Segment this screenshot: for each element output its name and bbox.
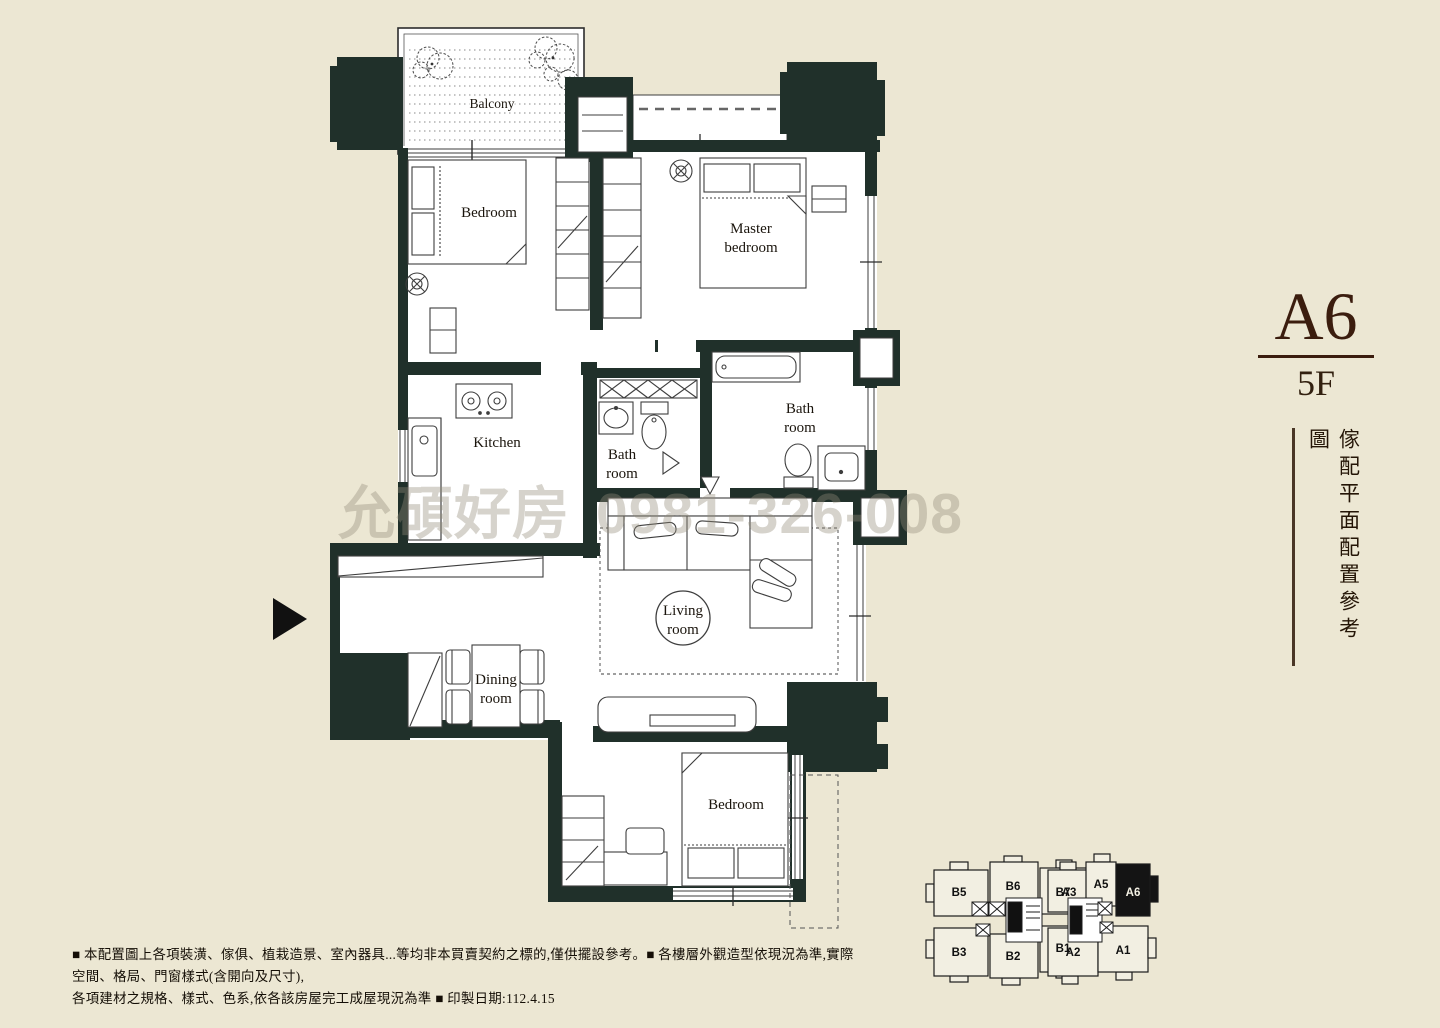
bath-main-label-1: Bath [786,401,815,417]
caption-text: 傢配平面配置參考圖 [1304,428,1364,668]
disclaimer: ■ 本配置圖上各項裝潢、傢俱、植栽造景、室內器具...等均非本買賣契約之標的,僅… [72,944,862,1010]
keyplan-unit-b5: B5 [952,887,967,899]
keyplan-unit-a5: A5 [1094,879,1109,891]
keyplan-unit-a1: A1 [1116,945,1131,957]
master-bedroom-label-1: Master [730,221,772,237]
entry-arrow-icon [273,598,307,640]
keyplan-core-left [972,898,1042,942]
watermark-phone: 0981-326-008 [596,482,963,546]
disclaimer-line-2: 各項建材之規格、樣式、色系,依各該房屋完工成屋現況為準 ■ 印製日期:112.4… [72,988,862,1010]
living-room-label-2: room [667,622,699,638]
kitchen-label: Kitchen [473,435,521,451]
bath-small-label-1: Bath [608,447,637,463]
keyplan-unit-b2: B2 [1006,951,1021,963]
plant-dot [431,63,434,66]
living-room-label-1: Living [663,603,703,619]
watermark-name: 允碩好房 [338,482,570,546]
balcony-label: Balcony [470,96,515,111]
plant-dot [552,57,555,60]
bedroom-top-label: Bedroom [461,205,517,221]
wardrobe [603,158,641,318]
caption: 傢配平面配置參考圖 [1292,428,1364,668]
keyplan-unit-a3: A3 [1062,887,1077,899]
keyplan-unit-a2: A2 [1066,947,1081,959]
keyplan-unit-a6: A6 [1126,887,1141,899]
title-block: A6 5F [1258,282,1374,404]
dining-room-label-2: room [480,691,512,707]
floor-plan-page: Balcony Bedroom Master bedroom Kitchen B… [0,0,1440,1028]
keyplan-unit-b6: B6 [1006,881,1021,893]
floor-title: 5F [1258,362,1374,404]
keyplan-unit-b3: B3 [952,947,967,959]
wardrobe [562,796,604,886]
bath-main-label-2: room [784,420,816,436]
watermark: 允碩好房0981-326-008 [338,468,963,550]
dining-room-label-1: Dining [475,672,517,688]
wardrobe [556,158,589,310]
key-plan: B5 B6 B7 B3 B2 B1 A3 A5 A6 A2 A1 [926,854,1158,985]
disclaimer-line-1: ■ 本配置圖上各項裝潢、傢俱、植栽造景、室內器具...等均非本買賣契約之標的,僅… [72,944,862,988]
bedroom-bottom-label: Bedroom [708,797,764,813]
unit-title: A6 [1258,282,1374,358]
caption-rule [1292,428,1295,666]
master-bedroom-label-2: bedroom [724,240,778,256]
